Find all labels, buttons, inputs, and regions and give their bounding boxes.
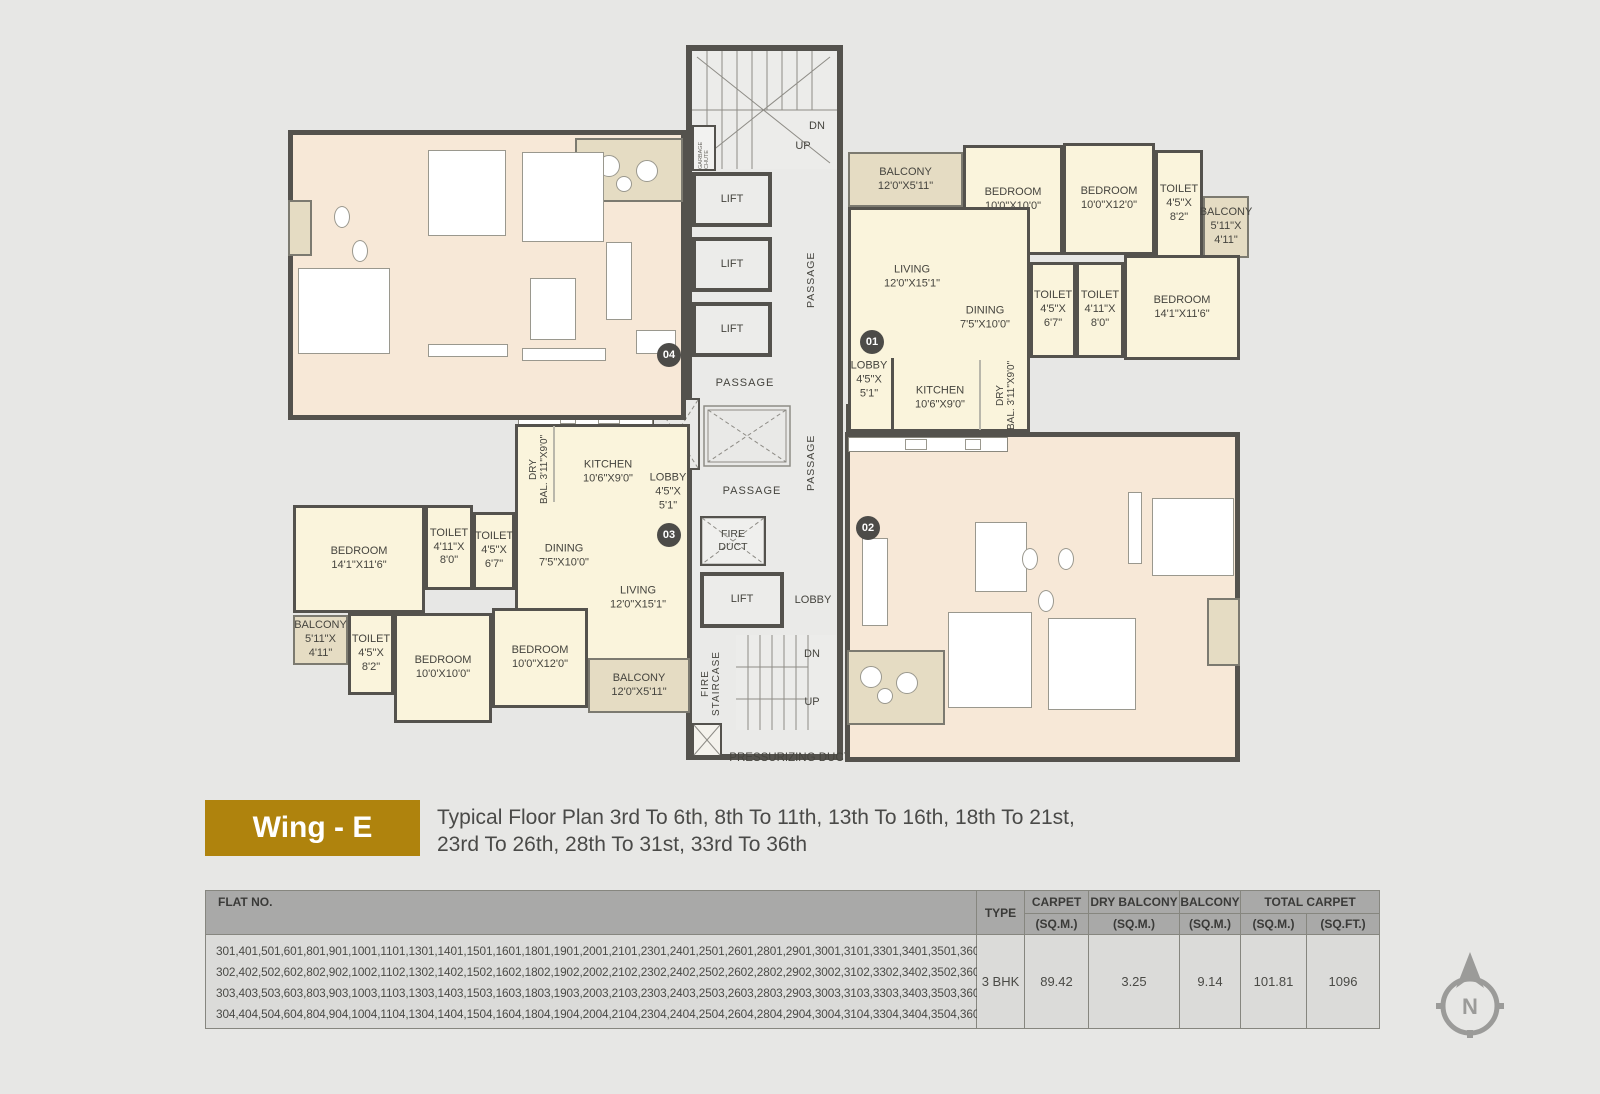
room-name: TOILET — [1160, 183, 1198, 197]
room-dims: 4'5"X 5'1" — [847, 373, 891, 401]
room-dims: 4'11"X 8'0" — [430, 541, 468, 569]
stair2-up-label: UP — [804, 696, 819, 710]
balcony-chair-icon — [896, 672, 918, 694]
balcony-table-icon — [877, 688, 893, 704]
room-name: DINING — [960, 304, 1010, 318]
flat-numbers-line2: 302,402,502,602,802,902,1002,1102,1302,1… — [216, 962, 972, 983]
floor-plan-page: DN UP GARBAGE CHUTE LIFT LIFT LIFT PASSA… — [0, 0, 1600, 1094]
u1-lobby-wall — [891, 358, 894, 432]
toilet-icon — [1038, 590, 1054, 612]
flat-table: FLAT NO. TYPE CARPET DRY BALCONY BALCONY… — [205, 890, 1380, 1029]
core-lobby-label: LOBBY — [795, 594, 832, 608]
stair2-dn-label: DN — [804, 648, 820, 662]
bed-icon — [1152, 498, 1234, 576]
bed-icon — [948, 612, 1032, 708]
lift-4: LIFT — [700, 572, 784, 628]
room-name: BALCONY — [294, 619, 347, 633]
col-total-sqm-unit: (SQ.M.) — [1241, 914, 1306, 934]
room-dims: 12'0"X5'11" — [611, 686, 666, 700]
u3-dining-label: DINING 7'5"X10'0" — [539, 542, 589, 570]
u1-toilet-c: TOILET 4'5"X 6'7" — [1030, 262, 1076, 358]
u3-balcony-bottom: BALCONY 12'0"X5'11" — [588, 658, 690, 713]
unit-01-badge: 01 — [860, 330, 884, 354]
col-dry-balcony: DRY BALCONY — [1089, 891, 1179, 913]
room-name: TOILET — [1034, 289, 1072, 303]
fire-staircase-label: FIRE STAIRCASE — [700, 638, 728, 730]
toilet-icon — [334, 206, 350, 228]
dining-table-icon — [530, 278, 576, 340]
lift-3: LIFT — [692, 302, 772, 357]
flat-numbers-line1: 301,401,501,601,801,901,1001,1101,1301,1… — [216, 941, 972, 962]
u1-dry-balcony-label: DRY BAL. 3'11"X9'0" — [995, 362, 1017, 430]
room-dims: 10'6"X9'0" — [915, 398, 965, 412]
u3-bedroom-b: BEDROOM 10'0"X12'0" — [492, 608, 588, 708]
passage-upper-label: PASSAGE — [716, 377, 775, 391]
room-dims: 12'0"X5'11" — [878, 180, 933, 194]
wing-badge: Wing - E — [205, 800, 420, 856]
u1-balcony-top: BALCONY 12'0"X5'11" — [848, 152, 963, 207]
u1-drybal-divider — [979, 360, 981, 430]
u1-kitchen-label: KITCHEN 10'6"X9'0" — [915, 384, 965, 412]
room-name: KITCHEN — [583, 458, 633, 472]
room-name: LIVING — [610, 584, 666, 598]
balcony-chair-icon — [860, 666, 882, 688]
room-dims: 4'5"X 5'1" — [646, 485, 690, 513]
u3-bedroom-c: BEDROOM 14'1"X11'6" — [293, 505, 425, 613]
bed-icon — [298, 268, 390, 354]
room-dims: 10'0"X12'0" — [1081, 199, 1137, 213]
room-dims: 10'0'X10'0" — [416, 668, 470, 682]
u3-balcony-side: BALCONY 5'11"X 4'11" — [293, 615, 348, 665]
dining-table-icon — [975, 522, 1027, 592]
u3-dry-balcony-label: DRY BAL. 3'11"X9'0" — [528, 436, 550, 504]
col-flat-no: FLAT NO. — [206, 891, 976, 934]
u3-toilet-b: TOILET 4'11"X 8'0" — [425, 505, 473, 590]
lift-2: LIFT — [692, 237, 772, 292]
room-name: BEDROOM — [331, 545, 388, 559]
room-dims: 3'11"X9'0" — [1006, 361, 1017, 406]
col-carpet: CARPET — [1025, 891, 1088, 913]
room-dims: 5'11"X 4'11" — [297, 633, 344, 661]
room-dims: 4'5"X 8'2" — [1160, 197, 1198, 225]
room-name: LOBBY — [646, 471, 690, 485]
compass-n-letter: N — [1462, 994, 1478, 1019]
u4-balcony-strip-icon — [288, 200, 312, 256]
bed-icon — [522, 152, 604, 242]
total-sqm-value: 101.81 — [1241, 935, 1306, 1028]
bed-icon — [1048, 618, 1136, 710]
stair-dn-label: DN — [809, 120, 825, 134]
bed-icon — [428, 150, 506, 236]
u2-balcony-strip-icon — [1207, 598, 1240, 666]
plan-title-line1: Typical Floor Plan 3rd To 6th, 8th To 11… — [437, 804, 1217, 831]
u1-lobby-label: LOBBY 4'5"X 5'1" — [847, 359, 891, 400]
room-dims: 4'11"X 8'0" — [1081, 303, 1119, 331]
sofa-icon — [606, 242, 632, 320]
u3-toilet-a: TOILET 4'5"X 8'2" — [348, 613, 394, 695]
u1-bedroom-b: BEDROOM 10'0"X12'0" — [1063, 143, 1155, 255]
passage-vertical-top-label: PASSAGE — [805, 222, 817, 337]
u1-toilet-a: TOILET 4'5"X 8'2" — [1155, 150, 1203, 258]
u1-balcony-side: BALCONY 5'11"X 4'11" — [1203, 196, 1249, 258]
plan-title: Typical Floor Plan 3rd To 6th, 8th To 11… — [437, 804, 1217, 858]
u1-toilet-b: TOILET 4'11"X 8'0" — [1076, 262, 1124, 358]
room-name: BEDROOM — [1154, 294, 1211, 308]
carpet-value: 89.42 — [1025, 935, 1088, 1028]
room-dims: 4'5"X 6'7" — [478, 544, 510, 572]
room-name: BEDROOM — [985, 186, 1042, 200]
wardrobe-icon — [1128, 492, 1142, 564]
room-dims: 7'5"X10'0" — [960, 318, 1010, 332]
room-name: BALCONY — [879, 166, 932, 180]
sink-icon — [965, 439, 981, 450]
toilet-icon — [1022, 548, 1038, 570]
room-name: TOILET — [430, 527, 468, 541]
balcony-value: 9.14 — [1180, 935, 1240, 1028]
compass-north-icon: N — [1432, 948, 1508, 1040]
u3-toilet-c: TOILET 4'5"X 6'7" — [473, 512, 515, 590]
unit-02-badge: 02 — [856, 516, 880, 540]
room-dims: 10'6"X9'0" — [583, 472, 633, 486]
room-name: TOILET — [475, 530, 513, 544]
u3-kitchen-label: KITCHEN 10'6"X9'0" — [583, 458, 633, 486]
room-name: LOBBY — [847, 359, 891, 373]
type-value: 3 BHK — [977, 935, 1024, 1028]
pressurizing-duct-icon — [692, 723, 722, 757]
col-carpet-unit: (SQ.M.) — [1025, 914, 1088, 934]
wardrobe-icon — [522, 348, 606, 361]
dry-balcony-value: 3.25 — [1089, 935, 1179, 1028]
col-dry-balcony-unit: (SQ.M.) — [1089, 914, 1179, 934]
u3-drybal-divider — [553, 426, 555, 502]
room-dims: 4'5"X 8'2" — [353, 647, 389, 675]
col-total-carpet: TOTAL CARPET — [1241, 891, 1379, 913]
balcony-table-icon — [616, 176, 632, 192]
col-type: TYPE — [977, 891, 1024, 934]
balcony-chair-icon — [636, 160, 658, 182]
room-dims: 10'0"X12'0" — [512, 658, 568, 672]
unit-04-badge: 04 — [657, 343, 681, 367]
room-name: BEDROOM — [1081, 185, 1138, 199]
passage-vertical-bottom-label: PASSAGE — [805, 405, 817, 520]
wardrobe-icon — [428, 344, 508, 357]
room-name: KITCHEN — [915, 384, 965, 398]
flat-numbers-line3: 303,403,503,603,803,903,1003,1103,1303,1… — [216, 983, 972, 1004]
sofa-icon — [862, 538, 888, 626]
col-balcony: BALCONY — [1180, 891, 1240, 913]
u1-living-label: LIVING 12'0"X15'1" — [884, 263, 940, 291]
plan-title-line2: 23rd To 26th, 28th To 31st, 33rd To 36th — [437, 831, 1217, 858]
u3-lobby-label: LOBBY 4'5"X 5'1" — [646, 471, 690, 512]
lift-label: LIFT — [721, 193, 744, 207]
room-dims: 14'1"X11'6" — [331, 559, 386, 573]
room-name: DINING — [539, 542, 589, 556]
unit-03-badge: 03 — [657, 523, 681, 547]
total-sqft-value: 1096 — [1307, 935, 1379, 1028]
u1-dining-label: DINING 7'5"X10'0" — [960, 304, 1010, 332]
u3-bedroom-a: BEDROOM 10'0'X10'0" — [394, 613, 492, 723]
room-name: BALCONY — [613, 672, 666, 686]
lift-label: LIFT — [731, 593, 754, 607]
room-name: TOILET — [352, 633, 390, 647]
lift-label: LIFT — [721, 258, 744, 272]
fire-duct-label: FIRE DUCT — [717, 528, 750, 554]
room-dims: 3'11"X9'0" — [539, 435, 550, 480]
garbage-chute-label: GARBAGE CHUTE — [694, 127, 714, 169]
room-name: TOILET — [1081, 289, 1119, 303]
toilet-icon — [1058, 548, 1074, 570]
room-dims: 14'1"X11'6" — [1154, 308, 1209, 322]
col-total-sqft-unit: (SQ.FT.) — [1307, 914, 1379, 934]
u1-bedroom-c: BEDROOM 14'1"X11'6" — [1124, 255, 1240, 360]
pressurizing-duct-label: PRESSURIZING DUCT — [729, 751, 850, 765]
lift-label: LIFT — [721, 323, 744, 337]
room-dims: 4'5"X 6'7" — [1035, 303, 1071, 331]
room-dims: 12'0"X15'1" — [610, 598, 666, 612]
staircase-bottom-icon — [736, 635, 836, 730]
col-balcony-unit: (SQ.M.) — [1180, 914, 1240, 934]
garbage-chute: GARBAGE CHUTE — [692, 125, 716, 171]
lift-1: LIFT — [692, 172, 772, 227]
toilet-icon — [352, 240, 368, 262]
u3-living-label: LIVING 12'0"X15'1" — [610, 584, 666, 612]
room-name: BEDROOM — [512, 644, 569, 658]
flat-numbers-line4: 304,404,504,604,804,904,1004,1104,1304,1… — [216, 1004, 972, 1025]
lift-lobby-mat-icon — [703, 405, 791, 467]
stair-up-label: UP — [795, 140, 810, 154]
passage-lower-label: PASSAGE — [723, 485, 782, 499]
room-name: BALCONY — [1200, 206, 1253, 220]
u2-kitchen-counter — [848, 437, 1008, 452]
room-name: LIVING — [884, 263, 940, 277]
room-name: BEDROOM — [415, 654, 472, 668]
room-dims: 5'11"X 4'11" — [1207, 220, 1245, 248]
flat-numbers-cell: 301,401,501,601,801,901,1001,1101,1301,1… — [206, 935, 976, 1028]
room-dims: 12'0"X15'1" — [884, 277, 940, 291]
fire-duct: FIRE DUCT — [700, 516, 766, 566]
stove-icon — [905, 439, 927, 450]
room-dims: 7'5"X10'0" — [539, 556, 589, 570]
